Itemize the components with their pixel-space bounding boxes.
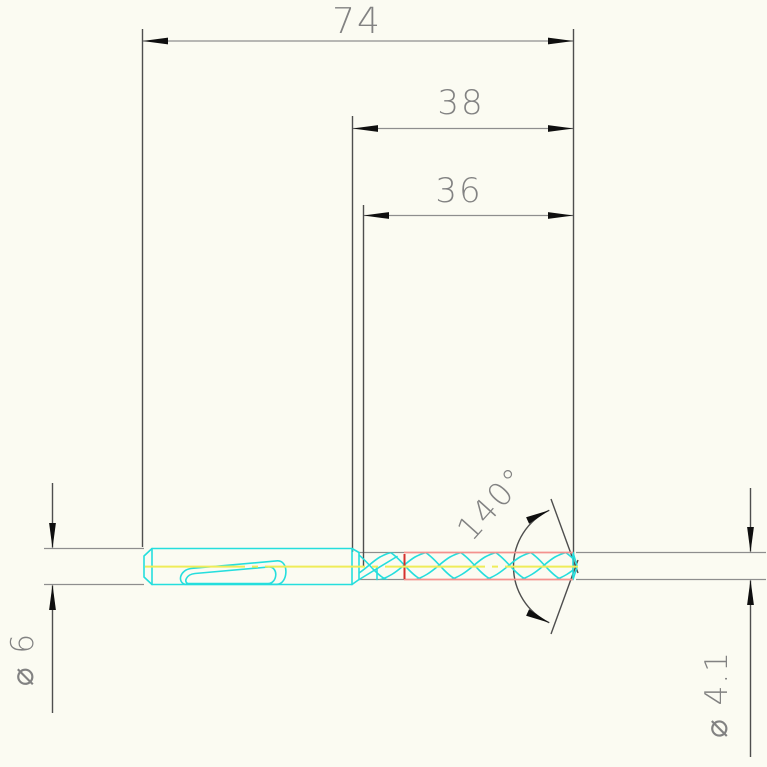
label-shank-diameter: ⌀ 6	[5, 632, 41, 686]
drawing-canvas: 74 38 36 140° ⌀ 6 ⌀ 4.1	[0, 0, 767, 767]
label-length-38: 38	[437, 83, 484, 123]
label-length-36: 36	[435, 171, 482, 211]
drill-technical-drawing: 74 38 36 140° ⌀ 6 ⌀ 4.1	[0, 0, 767, 767]
drawing-background	[0, 0, 767, 767]
label-overall-length: 74	[332, 1, 382, 42]
label-cutting-diameter: ⌀ 4.1	[699, 650, 735, 738]
